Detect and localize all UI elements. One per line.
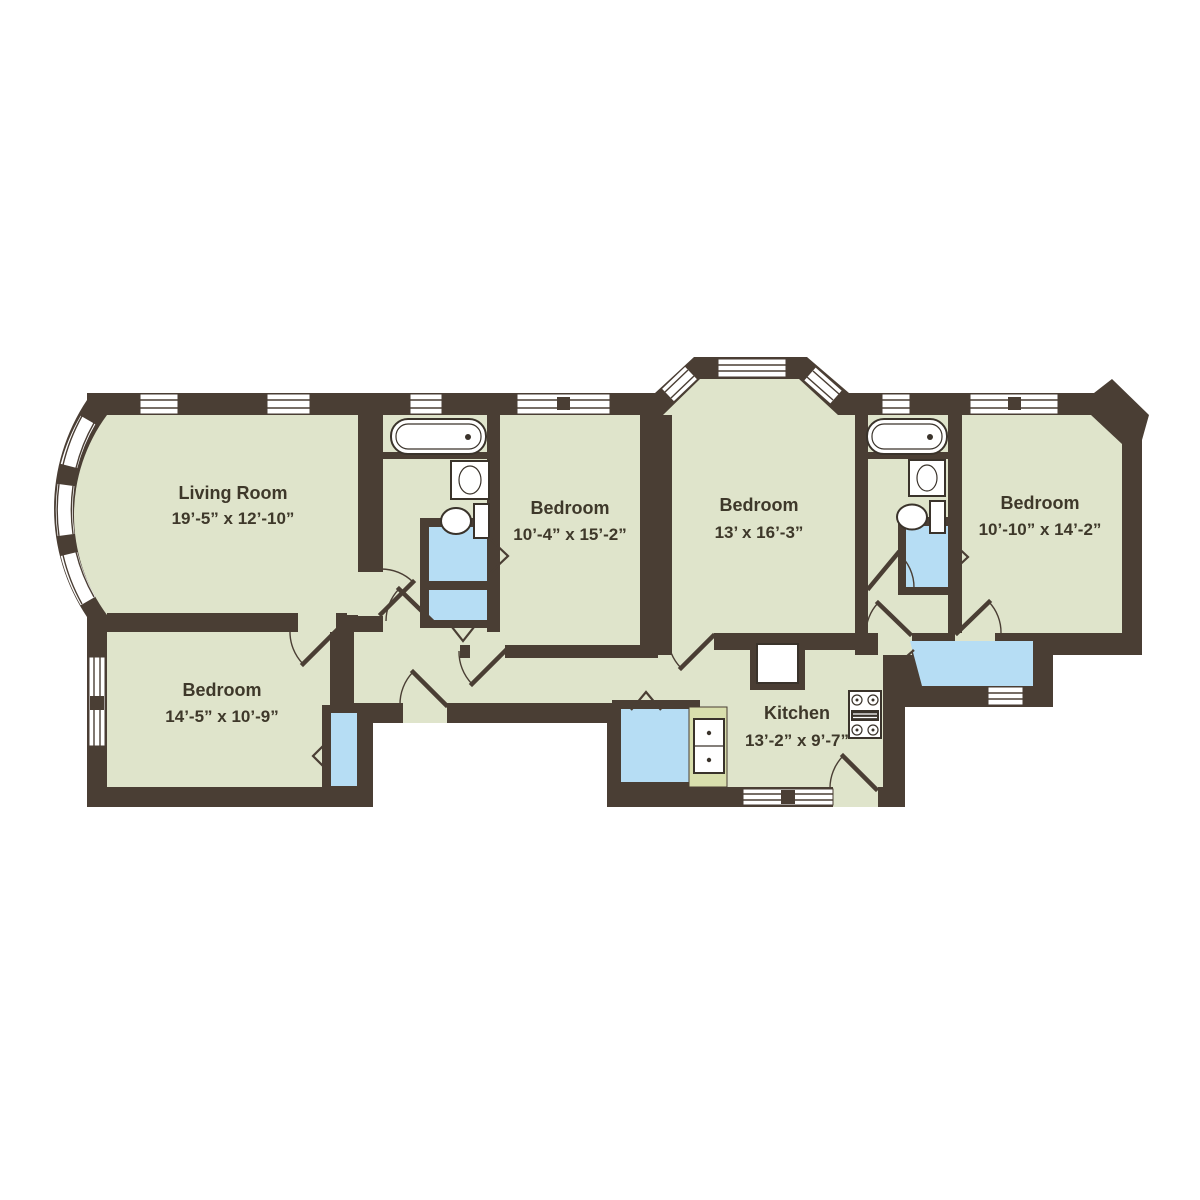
window — [743, 789, 833, 805]
bedroom-right-label: Bedroom — [1000, 493, 1079, 513]
kitchen-label: Kitchen — [764, 703, 830, 723]
window — [410, 394, 442, 414]
stove-icon — [849, 691, 881, 738]
bedroom-lower-dimensions: 14’-5” x 10’-9” — [165, 707, 278, 726]
bedroom-middle-label: Bedroom — [719, 495, 798, 515]
bathtub-icon — [391, 419, 486, 454]
living-room-label: Living Room — [179, 483, 288, 503]
bedroom-middle-dimensions: 13’ x 16’-3” — [715, 523, 804, 542]
window — [140, 394, 178, 414]
closet — [429, 590, 487, 620]
closet — [910, 641, 1033, 686]
closet — [621, 709, 691, 782]
sink-icon — [451, 461, 489, 499]
window — [517, 394, 610, 414]
bathtub-icon — [867, 419, 947, 454]
window — [882, 394, 910, 414]
bedroom-second-dimensions: 10’-4” x 15’-2” — [513, 525, 626, 544]
closet — [331, 713, 357, 786]
living-room-dimensions: 19’-5” x 12’-10” — [172, 509, 295, 528]
window — [267, 394, 310, 414]
bedroom-right-dimensions: 10’-10” x 14’-2” — [979, 520, 1102, 539]
closet — [906, 526, 948, 587]
floor-plan-page: Living Room 19’-5” x 12’-10” Bedroom 14’… — [0, 0, 1200, 1200]
window — [988, 687, 1023, 705]
sink-icon — [909, 460, 945, 496]
window — [970, 394, 1058, 414]
kitchen-dimensions: 13’-2” x 9’-7” — [745, 731, 849, 750]
kitchen-sink-icon — [694, 719, 724, 773]
pantry — [757, 644, 798, 683]
floor-plan-drawing: Living Room 19’-5” x 12’-10” Bedroom 14’… — [0, 0, 1200, 1200]
bedroom-lower-label: Bedroom — [182, 680, 261, 700]
window — [89, 657, 105, 746]
bedroom-second-label: Bedroom — [530, 498, 609, 518]
